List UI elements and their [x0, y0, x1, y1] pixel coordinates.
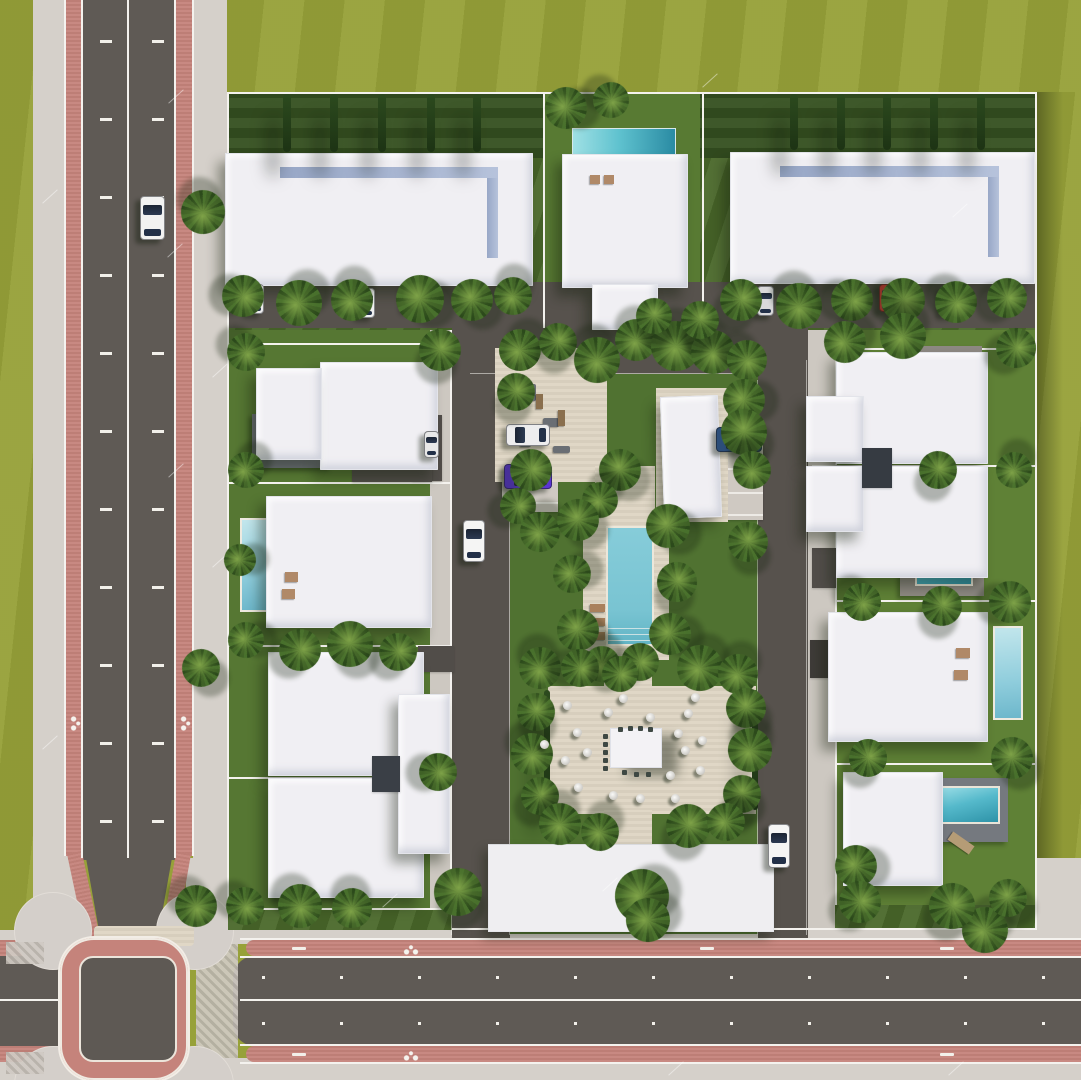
- boundary-line: [227, 92, 1037, 94]
- parasol: [684, 709, 693, 718]
- roof-vent: [285, 572, 298, 582]
- cypress-hedge: [930, 94, 938, 150]
- bike-lane-symbol: [181, 716, 192, 732]
- roof-vent: [956, 648, 970, 658]
- lot-line: [702, 92, 704, 328]
- skylight-strip: [780, 166, 999, 177]
- palm-tree: [849, 739, 887, 777]
- parasol: [583, 748, 592, 757]
- bike-lane-symbol: [403, 1050, 419, 1061]
- cypress-hedge: [330, 94, 338, 152]
- parasol: [619, 694, 628, 703]
- parasol: [671, 794, 680, 803]
- plaza-chair: [603, 766, 608, 771]
- bike-lane-south-1: [246, 940, 1081, 956]
- lane-marks: [100, 40, 112, 840]
- roof-vent: [282, 589, 295, 599]
- parasol: [696, 766, 705, 775]
- lane-arrow-mark: [292, 1053, 306, 1056]
- cypress-hedge: [283, 94, 291, 152]
- lot-line: [543, 92, 545, 328]
- parasol: [674, 729, 683, 738]
- villa-wing: [806, 396, 864, 462]
- car: [140, 196, 165, 240]
- boundary-line: [1035, 92, 1037, 930]
- field-shadow: [1037, 92, 1063, 938]
- parasol: [636, 794, 645, 803]
- villa-pool: [936, 786, 1000, 824]
- parasol: [666, 771, 675, 780]
- cypress-hedge: [790, 94, 798, 150]
- grass-field-left: [0, 0, 33, 938]
- villa: [266, 496, 432, 628]
- lane-arrow-mark: [292, 947, 306, 950]
- edge-line: [64, 0, 66, 856]
- edge-line: [240, 956, 1081, 958]
- cypress-hedge: [883, 94, 891, 150]
- car: [506, 424, 550, 446]
- clubhouse: [660, 395, 722, 519]
- skylight-strip: [487, 178, 498, 258]
- plaza-chair: [628, 726, 633, 731]
- parasol: [698, 736, 707, 745]
- center-line: [0, 999, 64, 1001]
- bike-lane-south-2: [246, 1046, 1081, 1062]
- patio-court: [372, 756, 400, 792]
- aerial-site-plan-rendering: [0, 0, 1081, 1080]
- parasol: [646, 713, 655, 722]
- plaza-chair: [603, 758, 608, 763]
- parasol: [604, 708, 613, 717]
- fitness-equipment: [553, 446, 570, 453]
- edge-line: [240, 1044, 1081, 1046]
- cypress-hedge: [837, 94, 845, 150]
- car: [463, 520, 485, 562]
- pool-step: [607, 634, 653, 635]
- grass-field-top: [224, 0, 1081, 94]
- sidewalk-east: [193, 0, 227, 942]
- roof-vent: [590, 175, 600, 184]
- parasol: [540, 740, 549, 749]
- plaza-chair: [638, 726, 643, 731]
- plaza-chair: [622, 770, 627, 775]
- boulevard-south: [233, 956, 1081, 1046]
- plaza-chair: [603, 734, 608, 739]
- car: [768, 824, 790, 868]
- cypress-hedge: [427, 94, 435, 152]
- plaza-chair: [603, 742, 608, 747]
- lane-marks: [262, 1022, 1077, 1025]
- villa-wing: [256, 368, 322, 460]
- edge-line: [192, 0, 194, 856]
- cypress-hedge: [378, 94, 386, 152]
- skylight-strip: [280, 167, 498, 178]
- cypress-hedge: [473, 94, 481, 152]
- villa: [320, 362, 438, 470]
- parasol: [573, 728, 582, 737]
- edge-line: [240, 1062, 1081, 1064]
- palm-tree: [499, 329, 541, 371]
- skylight-strip: [988, 177, 999, 257]
- bike-lane-symbol: [403, 944, 419, 955]
- parasol: [563, 701, 572, 710]
- plaza-chair: [648, 727, 653, 732]
- roof-vent: [954, 670, 968, 680]
- car: [424, 431, 439, 458]
- crosswalk: [6, 942, 44, 964]
- villa-north: [562, 154, 688, 288]
- palm-tree: [843, 583, 881, 621]
- lane-arrow-mark: [700, 947, 714, 950]
- patio-court: [862, 448, 892, 488]
- center-line: [240, 999, 1081, 1001]
- lane-arrow-mark: [940, 1053, 954, 1056]
- parasol: [574, 783, 583, 792]
- cypress-hedge: [977, 94, 985, 150]
- plaza-chair: [618, 727, 623, 732]
- pool-step: [607, 628, 653, 629]
- intersection-box: [79, 956, 177, 1062]
- crosswalk: [6, 1052, 44, 1074]
- lane-marks: [262, 976, 1077, 979]
- center-line: [127, 0, 129, 858]
- bench: [536, 394, 543, 409]
- roof-vent: [604, 175, 614, 184]
- villa-wing: [806, 466, 864, 532]
- lot-line: [450, 330, 452, 910]
- pool-step: [607, 640, 653, 641]
- bike-lane-symbol: [71, 716, 82, 732]
- bench: [558, 410, 565, 426]
- parasol: [609, 791, 618, 800]
- pavilion: [610, 728, 662, 768]
- parasol: [681, 746, 690, 755]
- lane-arrow-mark: [940, 947, 954, 950]
- parasol: [561, 756, 570, 765]
- parasol: [691, 693, 700, 702]
- sun-lounger: [590, 604, 605, 612]
- plaza-chair: [603, 750, 608, 755]
- driveway: [812, 548, 836, 588]
- plaza-chair: [646, 772, 651, 777]
- villa-pool: [993, 626, 1023, 720]
- edge-line: [174, 0, 176, 858]
- lane-marks: [152, 40, 164, 840]
- lot-line: [228, 482, 450, 484]
- plaza-chair: [634, 772, 639, 777]
